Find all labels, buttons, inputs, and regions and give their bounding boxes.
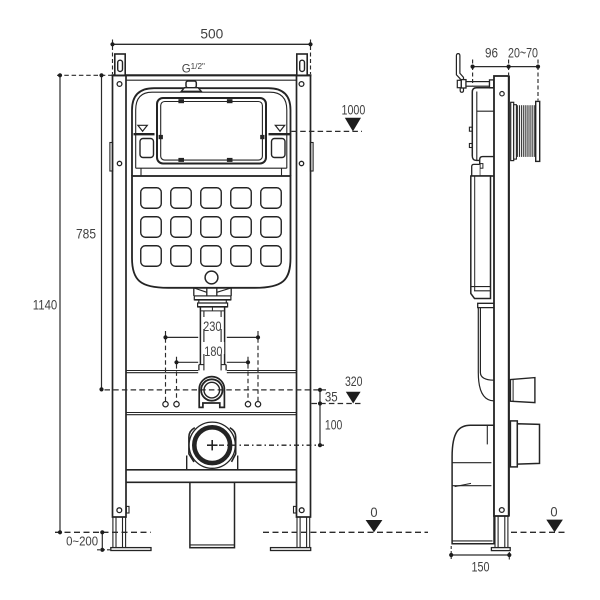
svg-text:785: 785 [76, 227, 96, 242]
svg-text:180: 180 [204, 344, 223, 359]
svg-text:20~70: 20~70 [508, 45, 538, 60]
svg-text:230: 230 [203, 319, 222, 334]
svg-text:1140: 1140 [33, 298, 58, 313]
svg-text:96: 96 [485, 45, 498, 60]
svg-text:320: 320 [345, 374, 363, 389]
svg-text:500: 500 [200, 26, 223, 41]
svg-text:0~200: 0~200 [66, 534, 98, 548]
svg-text:35: 35 [325, 390, 338, 405]
svg-text:0: 0 [370, 505, 378, 520]
svg-text:150: 150 [472, 560, 490, 575]
svg-text:1000: 1000 [342, 103, 366, 118]
svg-text:0: 0 [550, 504, 558, 519]
svg-text:100: 100 [325, 417, 343, 432]
